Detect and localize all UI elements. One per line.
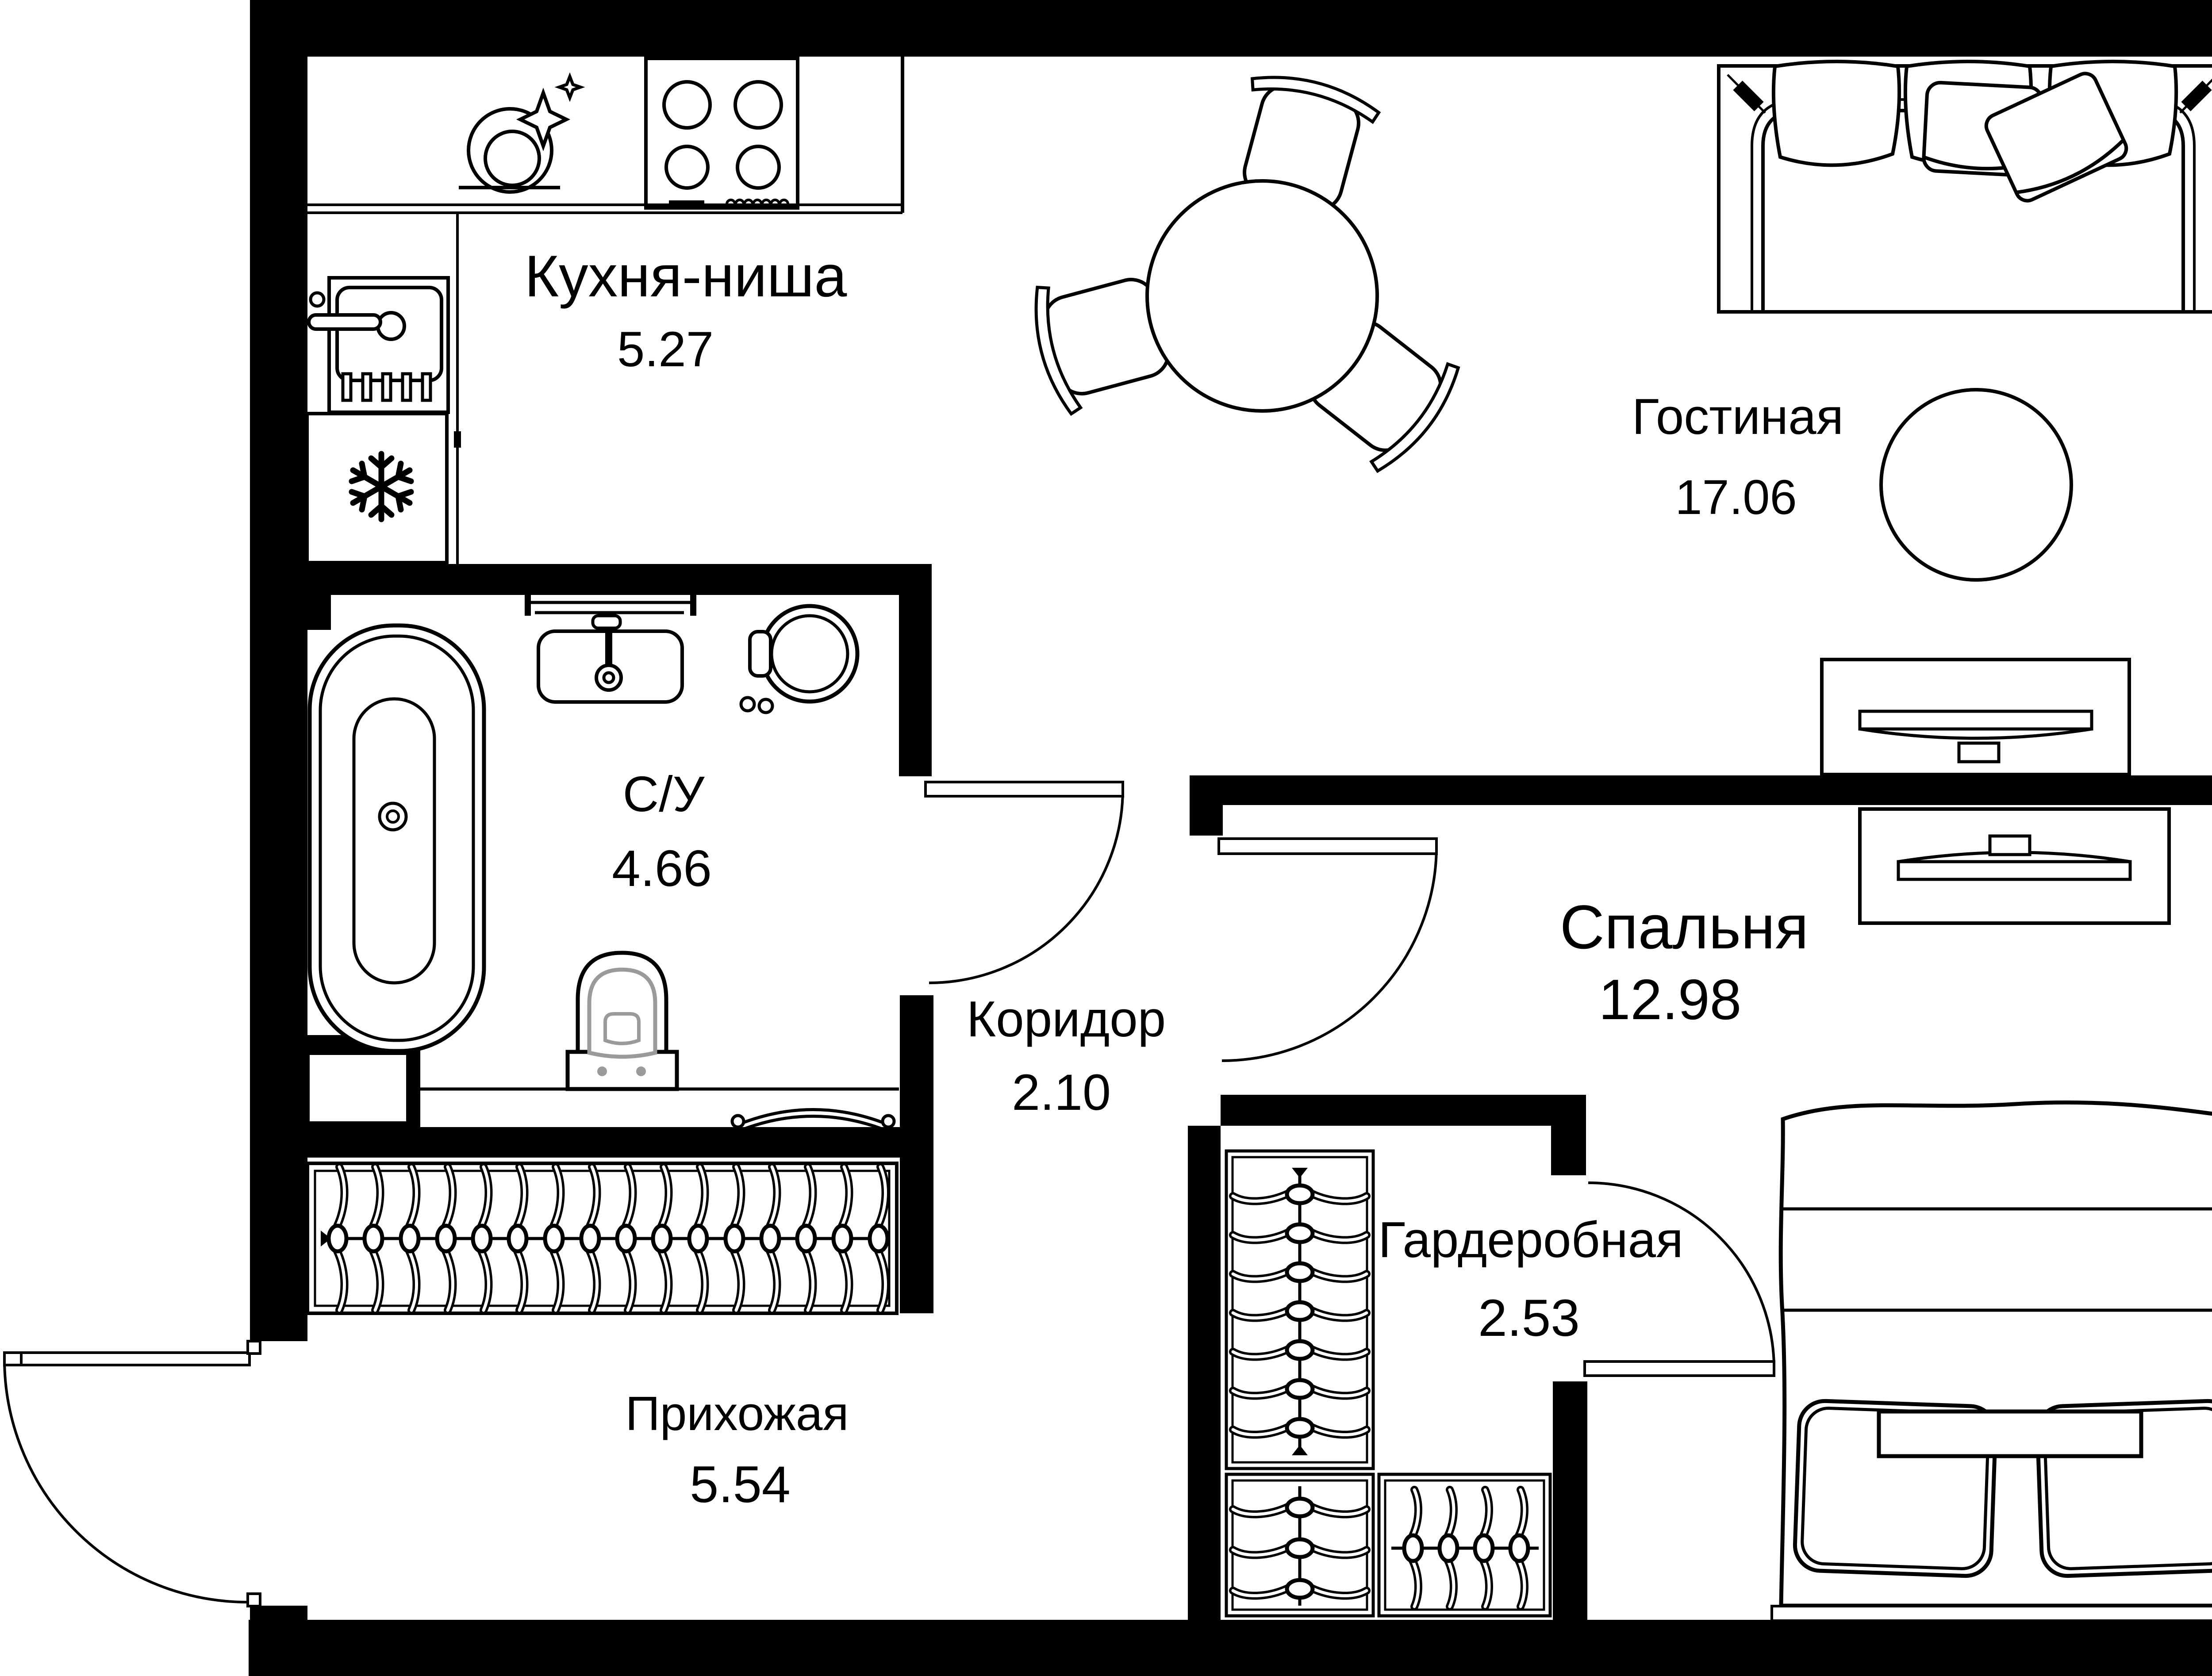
svg-text:Коридор: Коридор [967, 991, 1166, 1047]
svg-text:17.06: 17.06 [1675, 470, 1797, 525]
svg-text:Прихожая: Прихожая [625, 1387, 849, 1441]
svg-text:Гардеробная: Гардеробная [1378, 1212, 1683, 1268]
svg-text:5.54: 5.54 [690, 1455, 791, 1513]
svg-text:Кухня-ниша: Кухня-ниша [525, 244, 847, 309]
svg-text:С/У: С/У [623, 766, 705, 822]
svg-text:5.27: 5.27 [617, 322, 714, 377]
svg-text:12.98: 12.98 [1599, 968, 1742, 1032]
svg-text:4.66: 4.66 [612, 840, 712, 897]
svg-text:Гостиная: Гостиная [1632, 389, 1844, 445]
svg-text:2.10: 2.10 [1012, 1064, 1111, 1121]
svg-text:Спальня: Спальня [1560, 892, 1809, 962]
svg-text:2.53: 2.53 [1478, 1289, 1580, 1347]
